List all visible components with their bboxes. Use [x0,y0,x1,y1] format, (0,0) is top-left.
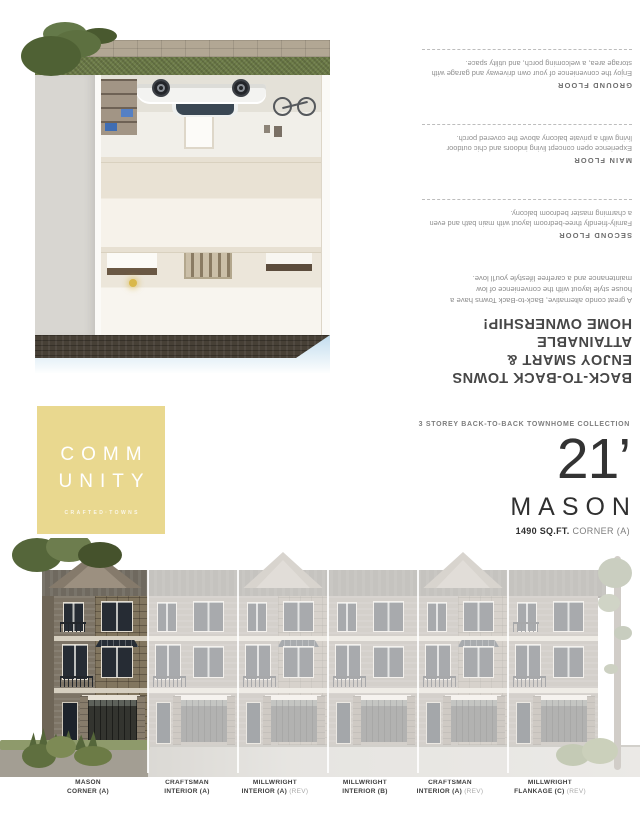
plan-area: 1490 SQ.FT. [516,526,570,536]
flipped-top-panel: BACK-TO-BACK TOWNS ENJOY SMART & ATTAINA… [0,0,640,408]
unit-label: MILLWRIGHT INTERIOR (B) [342,779,388,797]
marketing-copy-column: BACK-TO-BACK TOWNS ENJOY SMART & ATTAINA… [422,49,632,386]
floor-label: MAIN FLOOR [422,156,632,165]
foreground-shrubs [22,730,122,774]
garage-pegboard [264,125,270,133]
tree-foliage [21,36,81,76]
brochure-page: BACK-TO-BACK TOWNS ENJOY SMART & ATTAINA… [0,0,640,820]
unit-label: MASON CORNER (A) [67,779,109,797]
floor-section-ground: GROUND FLOOR Enjoy the convenience of yo… [422,49,632,90]
unit-divider-line [507,543,509,773]
plan-name: MASON [419,493,637,522]
bed-headboard [266,264,312,271]
unit-divider-line [417,543,419,773]
balcony-railing [60,676,94,687]
frontage-width: 21’ [419,432,630,486]
floor-label: SECOND FLOOR [422,231,632,240]
floor-descriptions: SECOND FLOOR Family-friendly three-bedro… [422,49,632,240]
unit-label: MILLWRIGHT INTERIOR (A) (REV) [242,779,309,797]
dashed-divider [422,124,632,125]
unit-label: CRAFTSMAN INTERIOR (A) (REV) [417,779,484,797]
logo-tagline: CRAFTED·TOWNS [37,510,165,516]
garage-pegboard [274,126,282,137]
headline: BACK-TO-BACK TOWNS ENJOY SMART & ATTAINA… [422,314,632,387]
floor-description: Experience open concept living indoors a… [428,132,632,153]
corner-return-wall [42,596,54,745]
unit-label: CRAFTSMAN INTERIOR (A) [164,779,210,797]
elevation-unit-labels: MASON CORNER (A) CRAFTSMAN INTERIOR (A) … [0,779,640,799]
headline-line-2: ENJOY SMART & ATTAINABLE [422,332,632,368]
unit-divider-line [147,543,149,773]
window [101,601,133,632]
floor-label: GROUND FLOOR [422,81,632,90]
chandelier [129,279,137,287]
exterior-wall [321,75,330,335]
plan-meta: 1490 SQ.FT.CORNER (A) [419,526,630,536]
intro-paragraph: A great condo alternative, Back-to-Back … [432,272,632,306]
logo-text-line-2: UNITY [37,469,165,496]
balcony-railing [60,622,86,632]
stone-pier [137,696,145,745]
window [101,646,133,678]
car-illustration [136,79,266,119]
floor-section-second: SECOND FLOOR Family-friendly three-bedro… [422,199,632,240]
cutaway-side-wall [35,75,101,335]
headline-line-1: BACK-TO-BACK TOWNS [422,368,632,386]
floor-description: Family-friendly three-bedroom layout wit… [428,207,632,228]
faded-units-overlay [148,538,640,780]
bicycle [272,97,316,123]
roof [35,335,330,358]
unit-divider-line [237,543,239,773]
storage-bin [105,123,117,131]
overhanging-branch [12,538,128,588]
floor-section-main: MAIN FLOOR Experience open concept livin… [422,124,632,165]
dashed-divider [422,199,632,200]
headline-line-3: HOME OWNERSHIP! [422,314,632,332]
floor-description: Enjoy the convenience of your own drivew… [428,57,632,78]
unit-divider-line [327,543,329,773]
streetscape-elevation [0,538,640,780]
dashed-divider [422,49,632,50]
logo-text-line-1: COMM [37,442,165,469]
plan-unit-type: CORNER (A) [573,526,631,536]
storage-bin [121,109,133,117]
plan-title-block: 3 STOREY BACK-TO-BACK TOWNHOME COLLECTIO… [419,421,630,536]
window [62,644,88,680]
unit-label: MILLWRIGHT FLANKAGE (C) (REV) [514,779,586,797]
community-logo: COMM UNITY CRAFTED·TOWNS [37,406,165,534]
townhome-cutaway-illustration [35,40,330,373]
bed-headboard [107,268,157,275]
